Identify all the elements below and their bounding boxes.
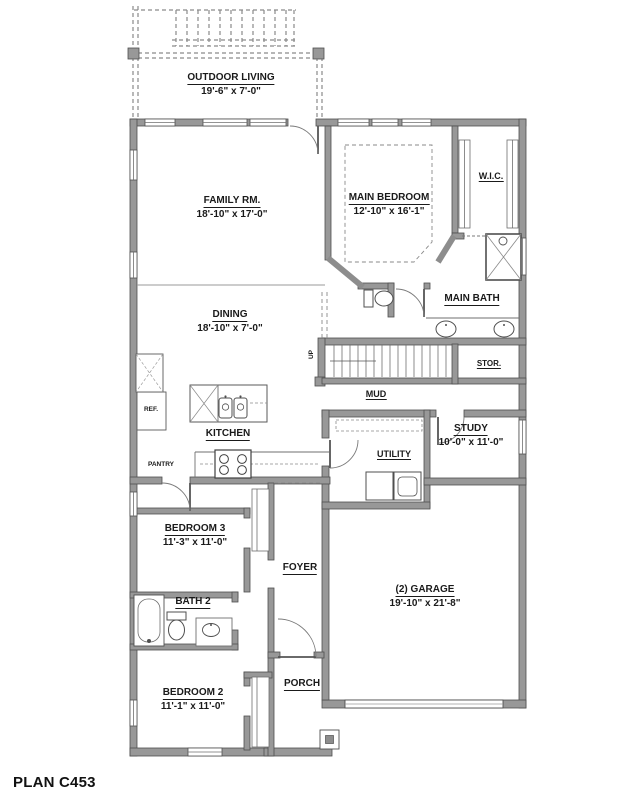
room-label-utility: UTILITY xyxy=(377,449,411,460)
room-name: STOR. xyxy=(477,359,501,369)
room-label-foyer: FOYER xyxy=(283,562,317,575)
utility-cabinets xyxy=(336,420,422,431)
porch-post xyxy=(320,730,339,749)
room-name: BEDROOM 3 xyxy=(165,523,226,536)
room-label-porch: PORCH xyxy=(284,678,320,691)
room-dims: 11'-1" x 11'-0" xyxy=(161,701,225,713)
room-label-study: STUDY 10'-0" x 11'-0" xyxy=(439,423,504,448)
room-label-garage: (2) GARAGE 19'-10" x 21'-8" xyxy=(390,584,461,609)
room-name: MUD xyxy=(366,389,387,400)
room-name: OUTDOOR LIVING xyxy=(187,72,274,85)
room-label-mud: MUD xyxy=(366,389,387,400)
room-label-wic: W.I.C. xyxy=(479,171,504,182)
stairs-up-label: UP xyxy=(308,350,315,359)
room-label-main-bath: MAIN BATH xyxy=(444,293,499,306)
room-name: BEDROOM 2 xyxy=(163,687,224,700)
room-label-kitchen: KITCHEN xyxy=(206,428,250,441)
room-dims: 19'-10" x 21'-8" xyxy=(390,598,461,610)
shower xyxy=(486,234,521,280)
room-name: BATH 2 xyxy=(175,596,210,609)
bath2-vanity xyxy=(196,618,232,646)
main-bath-toilet xyxy=(364,290,393,307)
room-dims: 19'-6" x 7'-0" xyxy=(187,86,274,98)
room-label-dining: DINING 18'-10" x 7'-0" xyxy=(197,309,262,334)
room-name: PORCH xyxy=(284,678,320,691)
room-dims: 18'-10" x 17'-0" xyxy=(197,209,268,221)
room-name: KITCHEN xyxy=(206,428,250,441)
room-label-bedroom3: BEDROOM 3 11'-3" x 11'-0" xyxy=(163,523,227,548)
stove xyxy=(215,450,251,478)
room-name: MAIN BEDROOM xyxy=(349,192,430,205)
bath2-toilet xyxy=(167,612,186,640)
room-name: FOYER xyxy=(283,562,317,575)
kitchen-fixtures xyxy=(136,354,329,478)
bath2-tub xyxy=(134,595,164,646)
room-name: MAIN BATH xyxy=(444,293,499,306)
room-dims: 11'-3" x 11'-0" xyxy=(163,537,227,549)
room-label-bath2: BATH 2 xyxy=(175,596,210,609)
plan-title: PLAN C453 xyxy=(13,774,96,791)
room-name: W.I.C. xyxy=(479,171,504,182)
room-name: UTILITY xyxy=(377,449,411,460)
ref-label: REF. xyxy=(144,406,158,413)
room-label-bedroom2: BEDROOM 2 11'-1" x 11'-0" xyxy=(161,687,225,712)
room-dims: 12'-10" x 16'-1" xyxy=(349,206,430,218)
room-label-main-bedroom: MAIN BEDROOM 12'-10" x 16'-1" xyxy=(349,192,430,217)
room-label-stor: STOR. xyxy=(477,359,501,369)
room-label-outdoor-living: OUTDOOR LIVING 19'-6" x 7'-0" xyxy=(187,72,274,97)
room-name: (2) GARAGE xyxy=(396,584,455,597)
floor-plan: OUTDOOR LIVING 19'-6" x 7'-0" FAMILY RM.… xyxy=(0,0,640,800)
room-dims: 18'-10" x 7'-0" xyxy=(197,323,262,335)
washer-dryer xyxy=(366,472,421,500)
trellis-pergola xyxy=(133,6,296,48)
angled-walls xyxy=(328,236,454,287)
room-name: FAMILY RM. xyxy=(204,195,261,208)
main-bath-sinks xyxy=(436,321,514,337)
garage-door xyxy=(345,700,503,708)
stairs xyxy=(330,345,446,377)
room-name: DINING xyxy=(212,309,247,322)
room-label-family: FAMILY RM. 18'-10" x 17'-0" xyxy=(197,195,268,220)
room-dims: 10'-0" x 11'-0" xyxy=(439,437,504,449)
room-name: STUDY xyxy=(454,423,488,436)
pantry-label: PANTRY xyxy=(148,461,174,468)
